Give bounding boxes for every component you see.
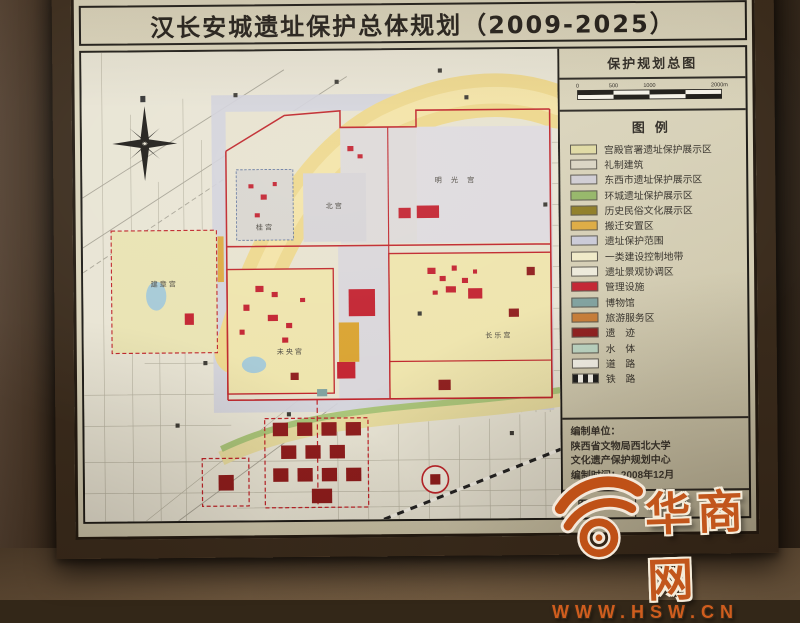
- museum-block: [317, 389, 327, 396]
- legend-item: 遗址景观协调区: [571, 263, 741, 280]
- legend-item: 一类建设控制地带: [571, 247, 741, 264]
- poster-title: 汉长安城遗址保护总体规划（2009-2025）: [150, 3, 676, 43]
- credits-org2: 文化遗产保护规划中心: [571, 453, 741, 469]
- legend-label: 历史民俗文化展示区: [604, 202, 692, 217]
- legend-label: 宫殿官署遗址保护展示区: [604, 141, 712, 156]
- credits-date: 编制时间：2008年12月: [571, 468, 741, 484]
- legend-swatch: [572, 373, 599, 383]
- scale-label-1000: 1000: [643, 83, 655, 89]
- legend-item: 水 体: [572, 339, 742, 356]
- relocation-bar: [217, 236, 223, 282]
- credits-org1: 陕西省文物局西北大学: [571, 439, 741, 455]
- legend-label: 管理设施: [605, 279, 644, 293]
- drawing-number-box: 图 号: [563, 490, 749, 518]
- legend-item: 旅游服务区: [571, 308, 741, 325]
- drawing-number-cell: [636, 503, 749, 504]
- label-weiyang: 未央宫: [277, 347, 304, 356]
- legend-item: 博物馆: [571, 293, 741, 310]
- title-box: 汉长安城遗址保护总体规划（2009-2025）: [79, 0, 747, 46]
- legend-box: 图例 宫殿官署遗址保护展示区礼制建筑东西市遗址保护展示区环城遗址保护展示区历史民…: [560, 110, 749, 420]
- legend-item: 东西市遗址保护展示区: [570, 171, 740, 188]
- legend-label: 遗址保护范围: [605, 233, 664, 248]
- credits-heading: 编制单位：: [570, 424, 740, 440]
- legend-item: 道 路: [572, 354, 742, 371]
- photo-scene: 汉长安城遗址保护总体规划（2009-2025）: [0, 0, 800, 600]
- picture-frame: 汉长安城遗址保护总体规划（2009-2025）: [51, 0, 778, 559]
- watermark-url: WWW.HSW.CN: [552, 602, 800, 623]
- legend-swatch: [571, 251, 598, 261]
- legend-label: 遗址景观协调区: [605, 264, 674, 279]
- scale-label-0: 0: [576, 84, 579, 90]
- scale-bar: 0 500 1000 2000m: [563, 80, 741, 108]
- legend-label: 博物馆: [605, 295, 635, 309]
- legend-swatch: [571, 312, 598, 322]
- legend-item: 历史民俗文化展示区: [570, 201, 740, 218]
- legend-swatch: [571, 282, 598, 292]
- legend-label: 环城遗址保护展示区: [604, 187, 692, 202]
- legend-label: 水 体: [606, 341, 636, 355]
- legend-swatch: [570, 144, 597, 154]
- legend-swatch: [571, 297, 598, 307]
- legend-swatch: [570, 175, 597, 185]
- legend-swatch: [571, 221, 598, 231]
- wall-left: [0, 0, 60, 600]
- poster: 汉长安城遗址保护总体规划（2009-2025）: [71, 0, 760, 540]
- label-beigong: 北宫: [326, 201, 344, 210]
- label-jianzhang: 建章宫: [151, 279, 178, 288]
- legend-label: 旅游服务区: [605, 310, 654, 324]
- legend-swatch: [571, 236, 598, 246]
- legend-label: 遗 迹: [606, 325, 636, 339]
- label-changle: 长乐宫: [485, 331, 512, 340]
- legend-label: 一类建设控制地带: [605, 248, 683, 263]
- compass-mark: [140, 96, 145, 102]
- legend-item: 遗址保护范围: [571, 232, 741, 249]
- credits-box: 编制单位： 陕西省文物局西北大学 文化遗产保护规划中心 编制时间：2008年12…: [562, 418, 749, 492]
- legend-label: 搬迁安置区: [605, 218, 654, 232]
- legend-swatch: [570, 190, 597, 200]
- scale-label-2000: 2000m: [711, 82, 728, 88]
- scale-bar-box: 0 500 1000 2000m: [559, 78, 745, 112]
- legend-swatch: [571, 266, 598, 276]
- map-area: 建章宫 未央宫 长乐宫 桂宫 北宫 明光宫: [81, 49, 561, 522]
- planning-map: 建章宫 未央宫 长乐宫 桂宫 北宫 明光宫: [81, 49, 561, 522]
- label-guigong: 桂宫: [256, 223, 274, 232]
- legend-swatch: [572, 328, 599, 338]
- legend-label: 东西市遗址保护展示区: [604, 172, 702, 187]
- legend-item: 礼制建筑: [570, 155, 740, 172]
- legend-item: 遗 迹: [572, 324, 742, 341]
- legend-swatch: [572, 358, 599, 368]
- legend-item: 搬迁安置区: [571, 217, 741, 234]
- legend-item: 宫殿官署遗址保护展示区: [570, 140, 740, 157]
- panel-title: 保护规划总图: [559, 47, 745, 80]
- side-panel: 保护规划总图 0 500 1000 2000m: [557, 47, 749, 518]
- legend-swatch: [572, 343, 599, 353]
- label-mingguang: 明光宫: [435, 175, 484, 185]
- legend-swatch: [571, 205, 598, 215]
- legend-label: 礼制建筑: [604, 157, 643, 171]
- legend-item: 环城遗址保护展示区: [570, 186, 740, 203]
- tourism-block: [339, 322, 360, 362]
- legend-label: 铁 路: [606, 371, 636, 385]
- legend-item: 铁 路: [572, 370, 742, 387]
- scale-segments: [578, 89, 722, 99]
- legend-title: 图例: [570, 113, 740, 141]
- legend-items: 宫殿官署遗址保护展示区礼制建筑东西市遗址保护展示区环城遗址保护展示区历史民俗文化…: [570, 140, 742, 386]
- drawing-number-label: 图 号: [563, 491, 636, 518]
- legend-label: 道 路: [606, 356, 636, 370]
- legend-swatch: [570, 159, 597, 169]
- scale-label-500: 500: [609, 83, 618, 89]
- content-box: 建章宫 未央宫 长乐宫 桂宫 北宫 明光宫 保护规划总图 0 500: [79, 45, 751, 524]
- legend-item: 管理设施: [571, 278, 741, 295]
